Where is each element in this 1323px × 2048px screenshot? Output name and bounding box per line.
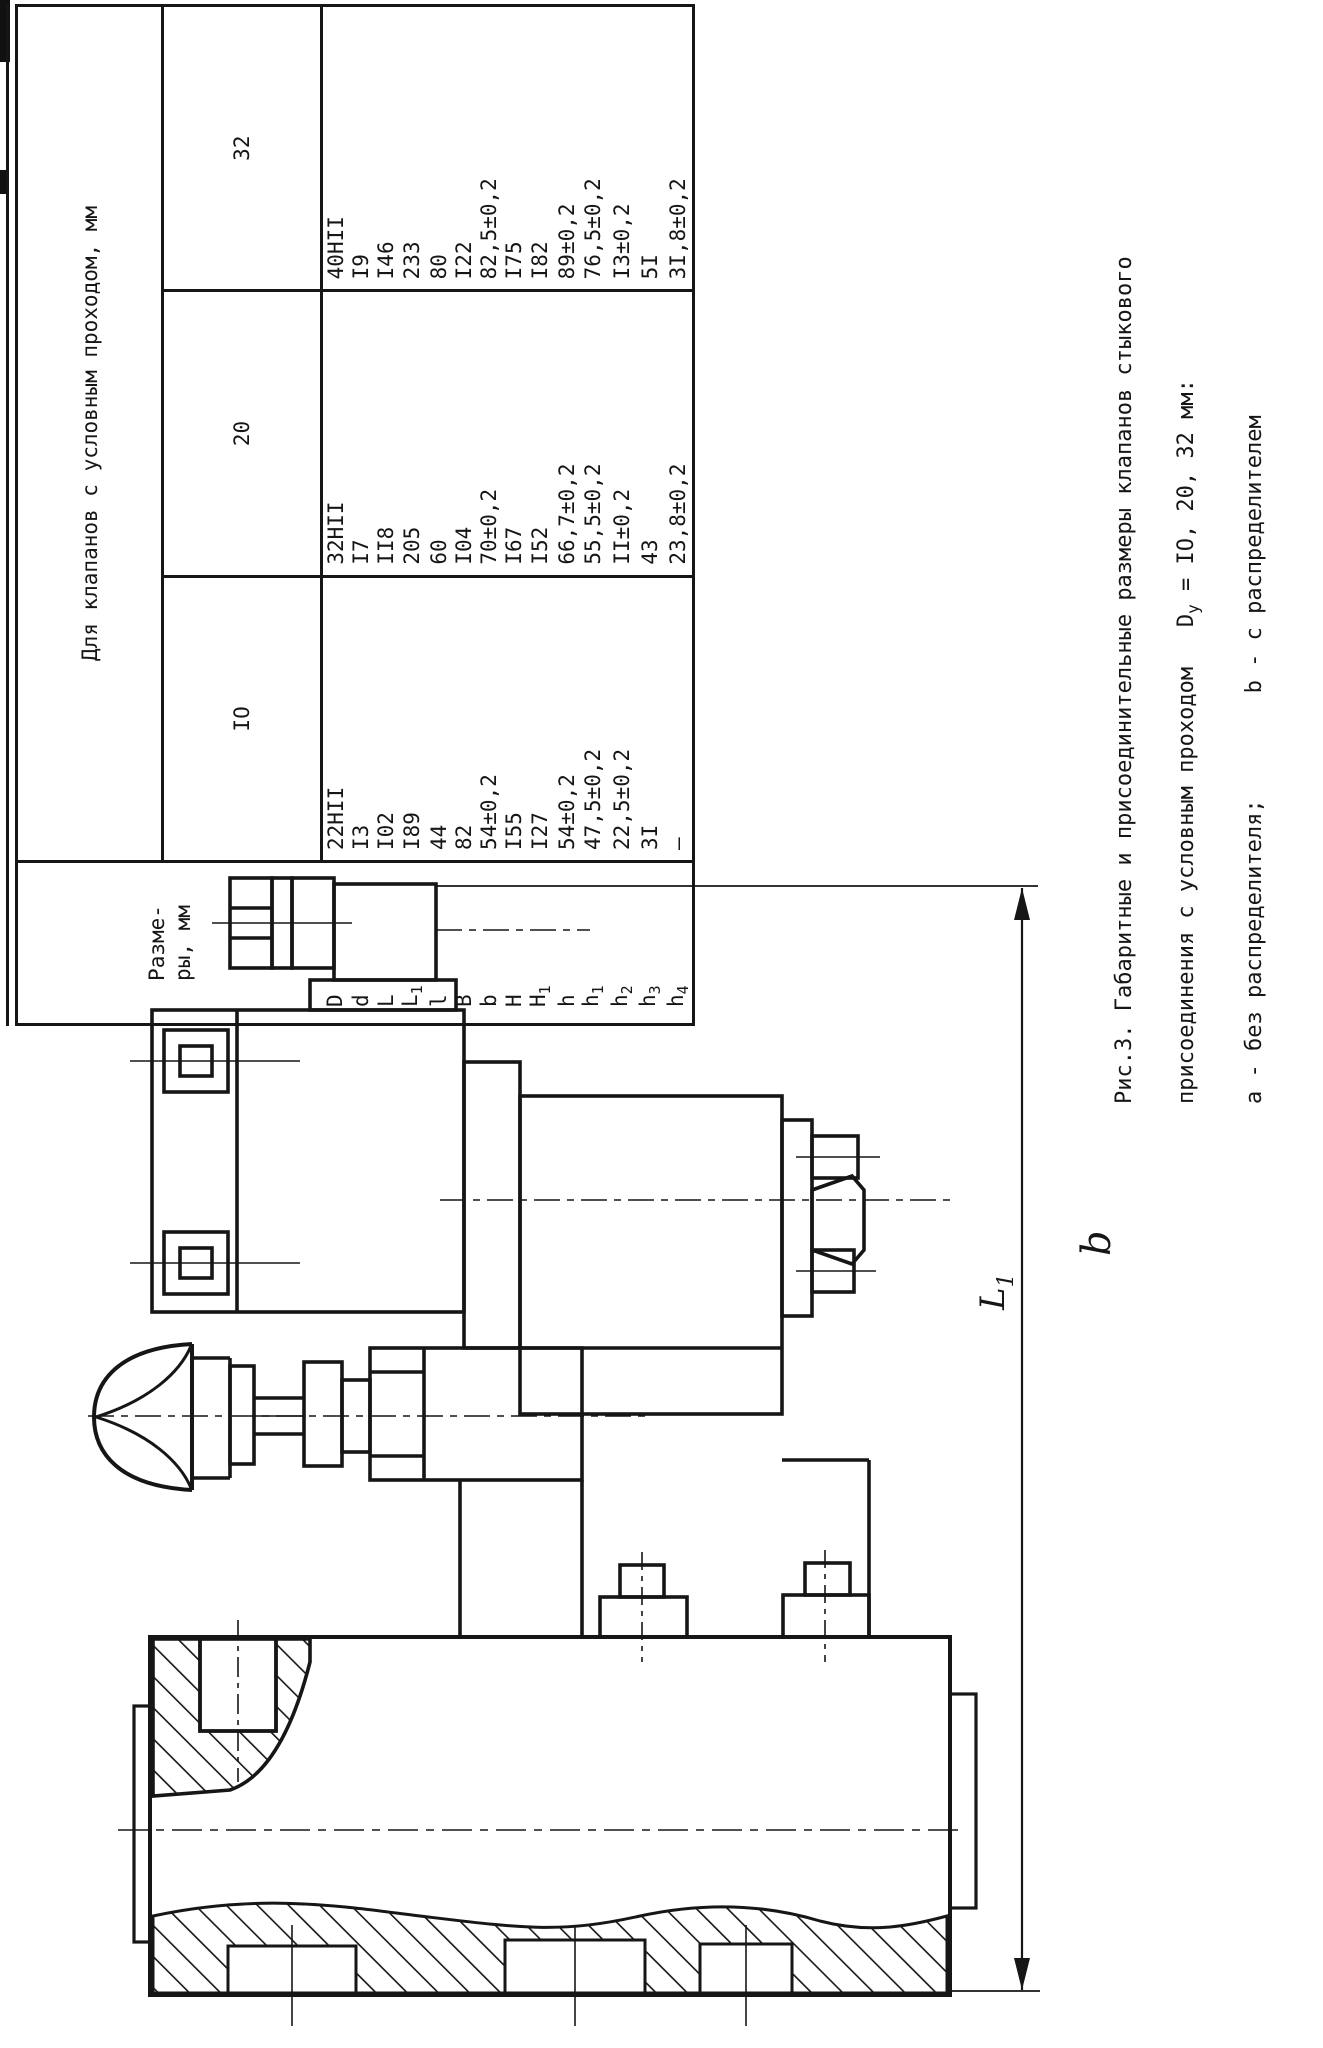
arrowhead-up	[1014, 888, 1030, 920]
port-boss	[600, 1597, 687, 1637]
valve-technical-drawing: L1 b	[0, 0, 1323, 2048]
mounting-plate	[310, 980, 456, 1010]
solenoid-body	[520, 1096, 782, 1414]
port-boss	[783, 1595, 869, 1637]
plug-housing	[334, 884, 436, 980]
distributor-body	[152, 1010, 464, 1312]
variant-label-b: b	[1074, 1230, 1120, 1256]
lock-nut	[304, 1362, 342, 1466]
valve-body-group	[118, 1550, 976, 2026]
adjuster-group	[88, 1344, 650, 1637]
scanned-page: Разме- ры, мм Для клапанов с условным пр…	[0, 0, 1323, 2048]
section-hatch-pocket	[153, 1639, 310, 1796]
adapter-plate	[464, 1062, 520, 1348]
side-flange-right	[950, 1694, 976, 1908]
arrowhead-down	[1014, 1958, 1030, 1990]
side-flange-left	[134, 1706, 150, 1942]
dimension-label-L1: L1	[973, 1273, 1019, 1311]
